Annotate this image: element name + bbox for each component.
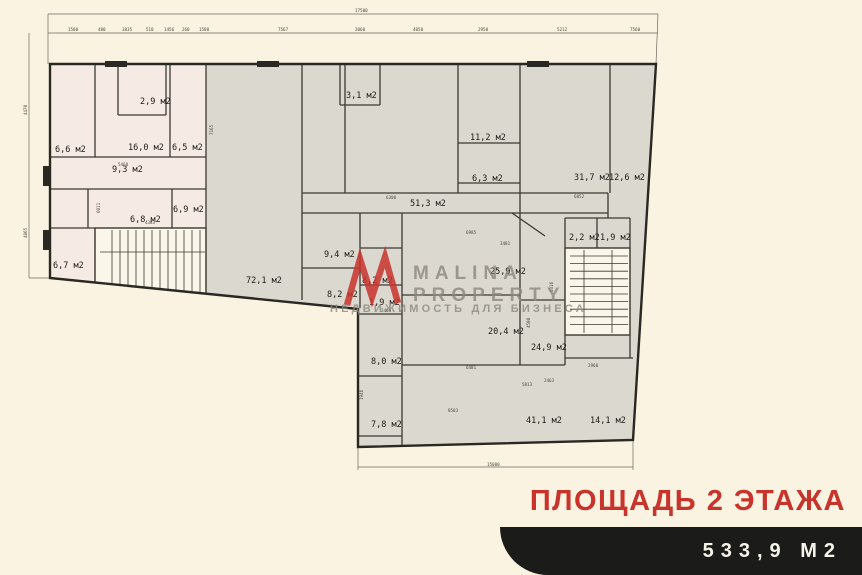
dimension-label: 7165 [209,124,214,135]
dimension-label: 2060 [355,27,366,32]
room-area-label: 6,6 м2 [55,145,86,155]
area-banner: 533,9 М2 [500,527,862,575]
room-area-label: 14,1 м2 [590,416,626,426]
room-area-label: 11,2 м2 [470,133,506,143]
dimension-label: 2463 [544,378,555,383]
dimension-label: 6852 [574,194,585,199]
room-area-label: 6,7 м2 [53,261,84,271]
dimension-label: 4470 [23,104,28,115]
room-area-label: 6,3 м2 [472,174,503,184]
area-banner-value: 533,9 М2 [703,540,862,563]
dimension-label: 6300 [386,195,397,200]
room-area-label: 3,1 м2 [346,91,377,101]
watermark-brand-top: MALINA [413,263,523,284]
room-area-label: 6,9 м2 [173,205,204,215]
room-area-label: 12,6 м2 [609,173,645,183]
watermark-tagline: НЕДВИЖИМОСТЬ ДЛЯ БИЗНЕСА [330,303,587,315]
room-area-label: 41,1 м2 [526,416,562,426]
room-area-label: 2,2 м2 [569,233,600,243]
dimension-label: 5212 [557,27,568,32]
dimension-label: 7567 [278,27,289,32]
room-area-label: 2,9 м2 [140,97,171,107]
dimension-label: 15000 [487,462,500,467]
dimension-label: 4500 [526,317,531,328]
dimension-label: 260 [182,27,190,32]
room-area-label: 7,8 м2 [371,420,402,430]
dimension-label: 8503 [448,408,459,413]
dimension-label: 3835 [122,27,133,32]
dimension-label: 1580 [199,27,210,32]
room-area-label: 6,5 м2 [172,143,203,153]
dimension-label: 5813 [522,382,533,387]
dimension-label: 480 [98,27,106,32]
page-title: ПЛОЩАДЬ 2 ЭТАЖА [326,485,846,518]
room-area-label: 24,9 м2 [531,343,567,353]
room-area-label: 8,0 м2 [371,357,402,367]
dimension-label: 1500 [68,27,79,32]
dimension-label: 3481 [500,241,511,246]
dimension-label: 2950 [478,27,489,32]
dimension-label: 510 [146,27,154,32]
room-area-label: 72,1 м2 [246,276,282,286]
stairwell-right [565,248,630,335]
dimension-label: 6481 [466,365,477,370]
room-area-label: 31,7 м2 [574,173,610,183]
room-area-label: 9,4 м2 [324,250,355,260]
dimension-label: 1946 [359,389,364,400]
dimension-label: 7560 [630,27,641,32]
dimension-label: 17500 [355,8,368,13]
dimension-label: 4383 [145,220,156,225]
dimension-label: 6011 [96,202,101,213]
dimension-label: 1456 [164,27,175,32]
floor-plan-page: 6,6 м22,9 м216,0 м26,5 м29,3 м26,8 м26,9… [0,0,862,575]
room-area-label: 20,4 м2 [488,327,524,337]
room-area-label: 16,0 м2 [128,143,164,153]
dimension-label: 2960 [588,363,599,368]
room-area-label: 51,3 м2 [410,199,446,209]
room-area-label: 1,9 м2 [600,233,631,243]
dimension-label: 5460 [118,162,129,167]
dimension-label: 4050 [413,27,424,32]
dimension-label: 4865 [23,227,28,238]
dimension-label: 6985 [466,230,477,235]
